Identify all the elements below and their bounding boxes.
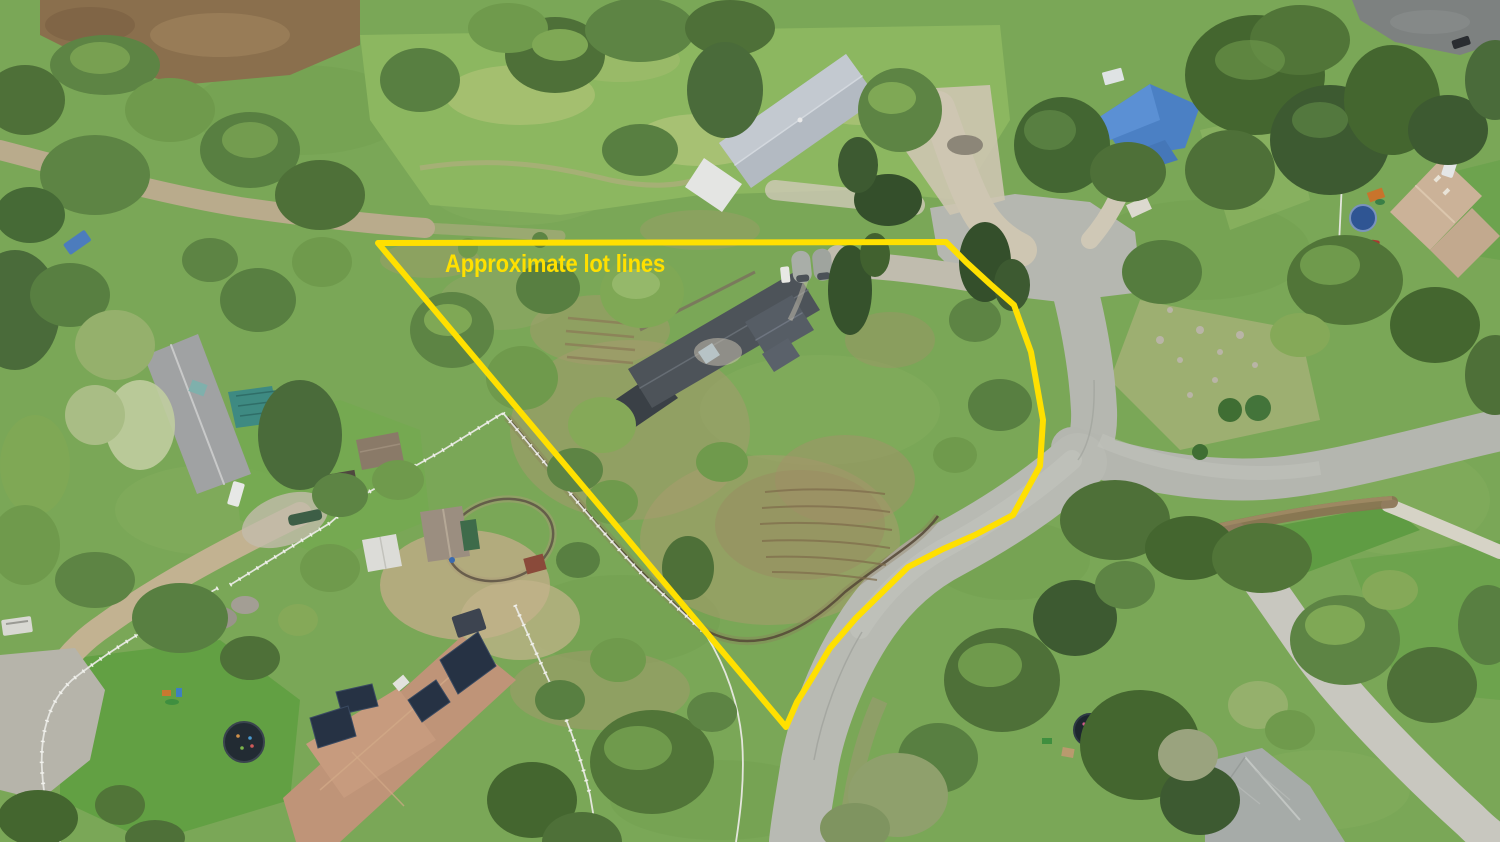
aerial-photo: Approximate lot lines [0, 0, 1500, 842]
play-set-small [162, 690, 171, 696]
aerial-photo-canvas: Approximate lot lines [0, 0, 1500, 842]
white-shed-corral [362, 534, 402, 572]
lot-lines-label: Approximate lot lines [445, 250, 665, 278]
blue-trampoline [1350, 205, 1376, 231]
black-trampoline [224, 722, 264, 762]
white-trailer [780, 266, 791, 283]
